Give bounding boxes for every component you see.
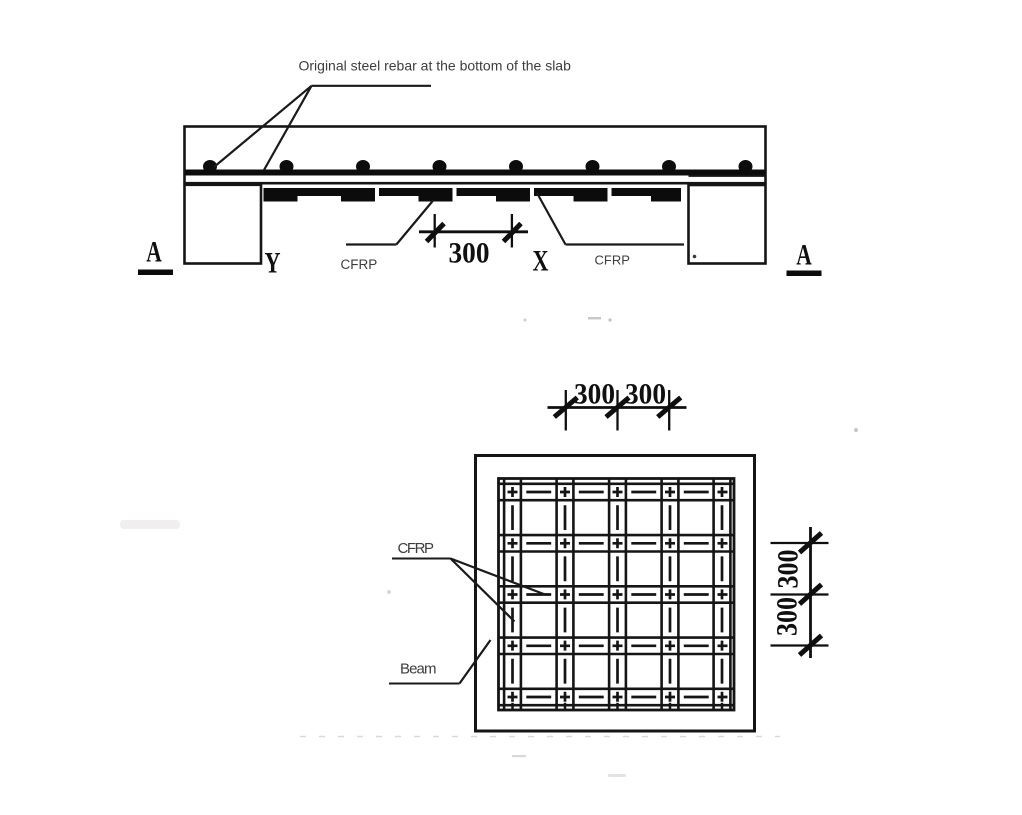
- svg-text:300: 300: [772, 550, 805, 589]
- svg-text:Beam: Beam: [400, 661, 437, 678]
- svg-text:300: 300: [625, 378, 666, 411]
- svg-text:CFRP: CFRP: [398, 540, 435, 557]
- svg-text:A: A: [796, 239, 812, 272]
- svg-text:300: 300: [449, 237, 490, 270]
- svg-text:CFRP: CFRP: [595, 253, 630, 268]
- svg-text:CFRP: CFRP: [341, 257, 378, 272]
- svg-text:X: X: [533, 245, 549, 278]
- svg-text:Original steel rebar at the bo: Original steel rebar at the bottom of th…: [299, 58, 572, 74]
- svg-text:Y: Y: [265, 247, 281, 280]
- svg-text:300: 300: [771, 597, 804, 636]
- svg-text:A: A: [146, 236, 162, 269]
- svg-text:300: 300: [574, 378, 615, 411]
